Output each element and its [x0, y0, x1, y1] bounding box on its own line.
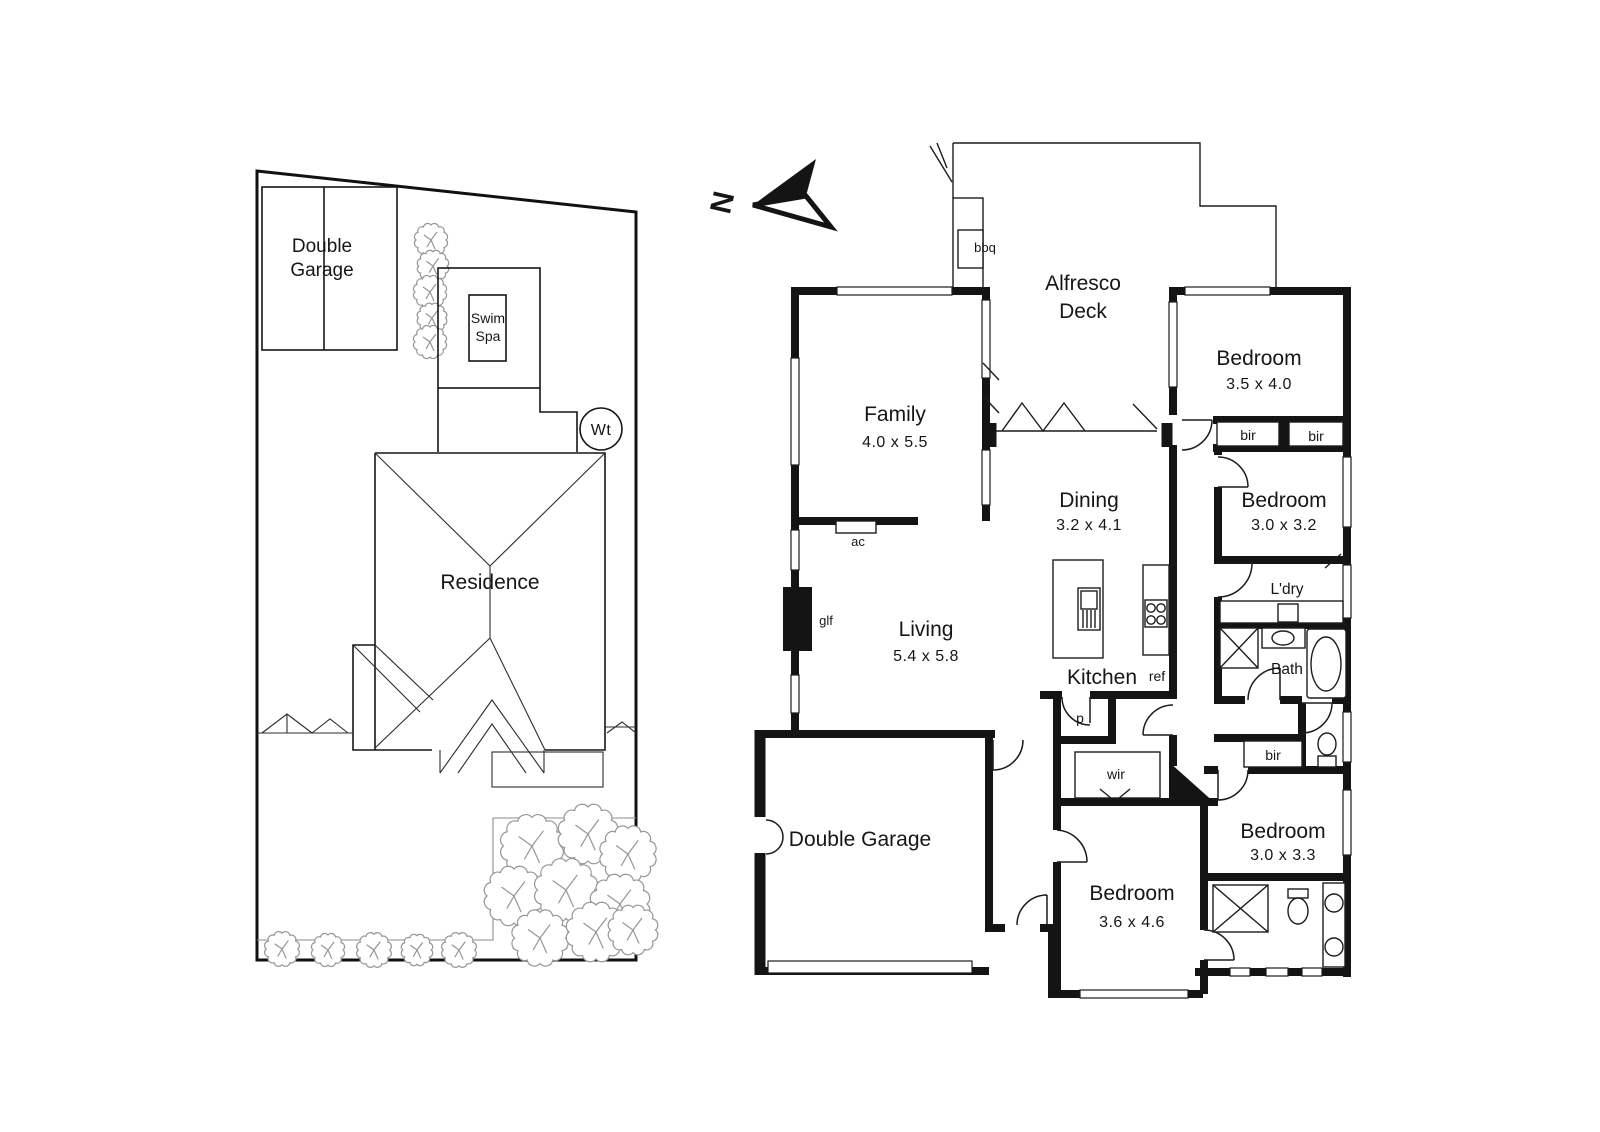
living-dims: 5.4 x 5.8 — [893, 648, 959, 665]
garage-door — [768, 961, 972, 973]
bir3-label: bir — [1265, 747, 1281, 763]
north-arrow: N — [703, 159, 831, 227]
ref-label: ref — [1149, 668, 1165, 684]
floorplan-page: Double Garage Swim Spa Wt Residence N — [0, 0, 1600, 1132]
gas-log-fire — [783, 587, 812, 651]
living-label: Living — [899, 618, 954, 641]
kitchen-label: Kitchen — [1067, 666, 1137, 689]
bedroom1-label: Bedroom — [1216, 347, 1301, 370]
bathtub — [1307, 629, 1346, 698]
alfresco-label-line2: Deck — [1059, 300, 1107, 323]
bir1-label: bir — [1240, 427, 1256, 443]
pantry-label: p — [1076, 710, 1084, 726]
alfresco-label-line1: Alfresco — [1045, 272, 1121, 295]
ac-label: ac — [851, 534, 865, 549]
residence-label: Residence — [440, 571, 539, 594]
swim-spa-area — [438, 268, 577, 452]
swim-spa-label-line2: Spa — [476, 328, 501, 344]
wir-label: wir — [1106, 766, 1125, 782]
cooktop-bench — [1143, 565, 1169, 655]
deck-steps — [990, 403, 1157, 431]
floor-plan: bbq Alfresco Deck Family 4.0 x 5.5 Bedro… — [756, 143, 1351, 998]
north-label: N — [703, 188, 740, 217]
water-tank-label: Wt — [591, 422, 612, 439]
family-dims: 4.0 x 5.5 — [862, 434, 928, 451]
dining-dims: 3.2 x 4.1 — [1056, 517, 1122, 534]
bedroom3-dims: 3.0 x 3.3 — [1250, 847, 1316, 864]
bedroom1-dims: 3.5 x 4.0 — [1226, 376, 1292, 393]
swim-spa-label-line1: Swim — [471, 310, 505, 326]
floorplan-drawing: Double Garage Swim Spa Wt Residence N — [0, 0, 1600, 1132]
laundry-label: L'dry — [1270, 581, 1303, 598]
washing-machine — [1278, 604, 1298, 622]
bedroom4-dims: 3.6 x 4.6 — [1099, 914, 1165, 931]
family-label: Family — [864, 403, 926, 426]
dining-label: Dining — [1059, 489, 1119, 512]
bedroom4-label: Bedroom — [1089, 882, 1174, 905]
wc-toilet — [1318, 733, 1336, 767]
ensuite-toilet — [1288, 898, 1308, 924]
garden-beds — [257, 804, 658, 967]
ensuite-vanity — [1323, 883, 1345, 967]
bir2-label: bir — [1308, 428, 1324, 444]
site-garage-label-line1: Double — [292, 236, 352, 257]
bedroom2-label: Bedroom — [1241, 489, 1326, 512]
bedroom2-dims: 3.0 x 3.2 — [1251, 517, 1317, 534]
bedroom3-label: Bedroom — [1240, 820, 1325, 843]
glf-label: glf — [819, 613, 833, 628]
hedge-column — [413, 223, 448, 358]
bbq-label: bbq — [974, 240, 996, 255]
north-arrow-icon-outline — [753, 196, 831, 227]
ac-unit — [836, 521, 876, 533]
garage-label: Double Garage — [789, 828, 931, 851]
ensuite-toilet-tank — [1288, 889, 1308, 898]
site-plan: Double Garage Swim Spa Wt Residence — [257, 171, 658, 967]
bath-label: Bath — [1271, 661, 1303, 678]
site-residence — [257, 453, 636, 787]
kitchen-island — [1053, 560, 1103, 658]
site-garage-label-line2: Garage — [290, 260, 353, 281]
